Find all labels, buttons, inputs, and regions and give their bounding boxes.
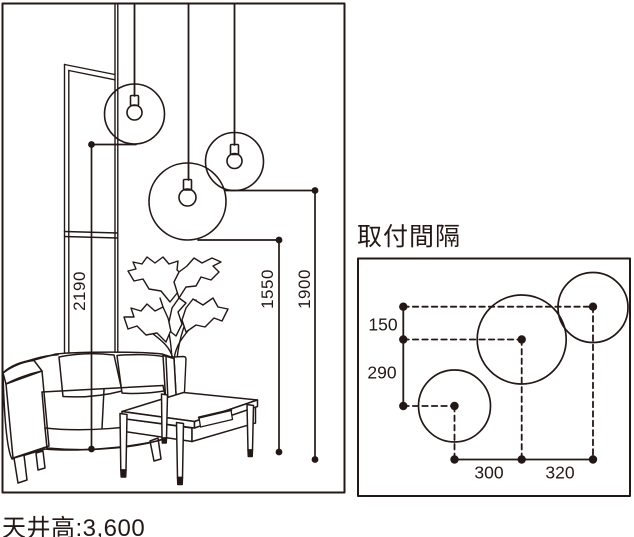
drop-dimension-label-1550: 1550 [258, 269, 278, 309]
drop-dimension-label-1900: 1900 [295, 269, 315, 309]
spacing-label-300: 300 [474, 462, 503, 483]
glass-globe [149, 163, 226, 240]
light-bulb [179, 189, 196, 206]
pendant-cords [135, 4, 235, 181]
spacing-label-320: 320 [545, 462, 574, 483]
mounting-spacing-diagram [358, 259, 630, 497]
drop-dimension-label-2190: 2190 [70, 271, 90, 311]
spacing-label-290: 290 [367, 363, 396, 384]
figure-graphics [0, 0, 634, 537]
ceiling-height-label: 天井高:3,600 [2, 508, 145, 537]
pendant-lamp-middle [149, 163, 226, 240]
light-bulb [127, 105, 142, 120]
spacing-label-150: 150 [368, 314, 397, 335]
lamp-socket [131, 96, 139, 106]
room-scene [3, 4, 345, 493]
catalog-figure: 2190 1550 1900 天井高:3,600 取付間隔 150 290 30… [0, 0, 634, 537]
spacing-diagram-title: 取付間隔 [357, 217, 461, 253]
mounting-points [399, 303, 597, 464]
light-bulb [227, 154, 242, 169]
